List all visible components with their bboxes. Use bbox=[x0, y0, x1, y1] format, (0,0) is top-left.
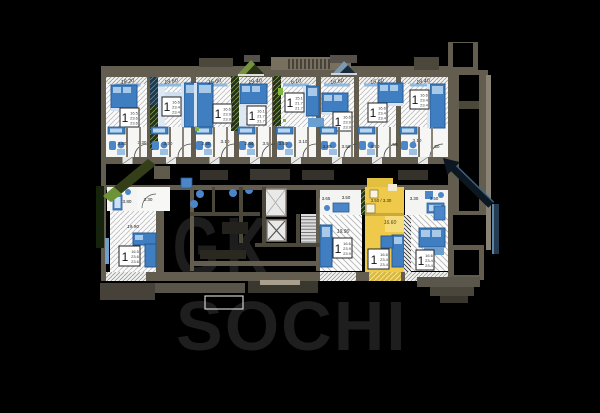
svg-text:23.4: 23.4 bbox=[380, 262, 389, 267]
svg-text:21.7: 21.7 bbox=[257, 119, 266, 124]
svg-text:1: 1 bbox=[371, 253, 378, 267]
svg-text:3.50 / 3.30: 3.50 / 3.30 bbox=[371, 198, 392, 203]
svg-text:1: 1 bbox=[335, 242, 342, 256]
svg-text:1: 1 bbox=[122, 111, 129, 125]
svg-text:3.30: 3.30 bbox=[138, 140, 147, 145]
svg-text:3.50: 3.50 bbox=[342, 144, 351, 149]
svg-text:1: 1 bbox=[418, 254, 425, 268]
svg-text:23.4: 23.4 bbox=[420, 103, 429, 108]
svg-text:3.80: 3.80 bbox=[123, 199, 132, 204]
svg-text:1: 1 bbox=[164, 100, 171, 114]
svg-text:23.4: 23.4 bbox=[172, 110, 181, 115]
svg-text:3.50: 3.50 bbox=[279, 141, 288, 146]
svg-text:23.6: 23.6 bbox=[131, 259, 140, 264]
svg-text:3.50: 3.50 bbox=[430, 196, 439, 201]
svg-text:16.60: 16.60 bbox=[384, 220, 397, 226]
svg-text:1: 1 bbox=[412, 93, 419, 107]
svg-text:1: 1 bbox=[215, 107, 222, 121]
svg-text:23.9: 23.9 bbox=[223, 117, 232, 122]
svg-text:2.54: 2.54 bbox=[245, 141, 254, 146]
svg-text:23.4: 23.4 bbox=[378, 116, 387, 121]
svg-text:3.30: 3.30 bbox=[144, 197, 153, 202]
svg-text:23.6: 23.6 bbox=[130, 121, 139, 126]
svg-text:3.80: 3.80 bbox=[118, 141, 127, 146]
svg-text:3.80: 3.80 bbox=[323, 144, 332, 149]
svg-text:3.10: 3.10 bbox=[413, 138, 422, 143]
svg-text:3.10: 3.10 bbox=[221, 139, 230, 144]
svg-text:1: 1 bbox=[370, 106, 377, 120]
svg-text:23.9: 23.9 bbox=[343, 251, 352, 256]
svg-text:1: 1 bbox=[249, 109, 256, 123]
svg-text:3.50: 3.50 bbox=[202, 141, 211, 146]
svg-text:19.90: 19.90 bbox=[127, 224, 139, 230]
svg-text:3.50: 3.50 bbox=[164, 141, 173, 146]
svg-text:19.90: 19.90 bbox=[337, 229, 350, 235]
svg-text:23.4: 23.4 bbox=[425, 263, 434, 268]
svg-text:1: 1 bbox=[287, 96, 294, 110]
svg-text:3.50: 3.50 bbox=[342, 195, 351, 200]
svg-text:4.50: 4.50 bbox=[371, 144, 380, 149]
svg-text:23.9: 23.9 bbox=[343, 125, 352, 130]
svg-text:1: 1 bbox=[122, 250, 129, 264]
svg-text:21.7: 21.7 bbox=[295, 106, 304, 111]
svg-text:3.65: 3.65 bbox=[322, 196, 331, 201]
svg-text:3.30: 3.30 bbox=[410, 196, 419, 201]
svg-text:SOCHI: SOCHI bbox=[176, 287, 408, 365]
svg-text:3.10: 3.10 bbox=[299, 139, 308, 144]
